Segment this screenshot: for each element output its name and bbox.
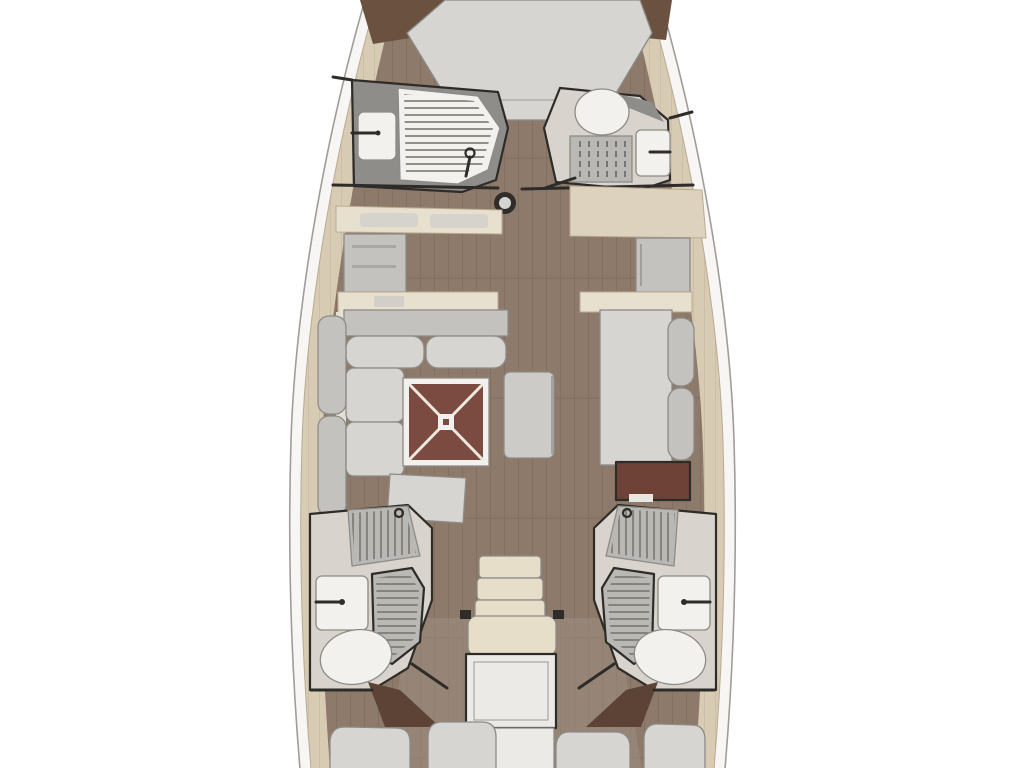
galley-drawer-handle-1 bbox=[352, 245, 396, 248]
aft-cabin-stbd-pillow-2 bbox=[644, 724, 705, 768]
stbd-counter bbox=[570, 186, 706, 238]
companionway-bracket-stbd bbox=[553, 610, 564, 619]
port-sofa-cushion-1 bbox=[346, 336, 424, 368]
engine-box bbox=[466, 654, 556, 728]
fwd-head-port-sink bbox=[358, 112, 396, 160]
aft-cabin-port-pillow-2 bbox=[428, 722, 496, 768]
galley-drawer-handle-2 bbox=[352, 265, 396, 268]
galley-sink-recess-2 bbox=[430, 214, 488, 228]
port-sofa-back-side-1 bbox=[318, 316, 346, 414]
port-sofa-back-top bbox=[344, 310, 508, 336]
salon-table-center-dot bbox=[443, 419, 449, 425]
aft-head-port-faucet-knob bbox=[339, 599, 345, 605]
galley-cabinet bbox=[344, 234, 406, 292]
companionway-landing bbox=[468, 616, 556, 656]
port-sofa-seat-1 bbox=[346, 368, 404, 422]
stbd-settee-back-1 bbox=[668, 318, 694, 386]
fwd-head-port-faucet-knob bbox=[376, 131, 381, 136]
aft-cabin-stbd-pillow-1 bbox=[556, 732, 630, 768]
fwd-head-stbd-toilet bbox=[575, 89, 629, 135]
salon-stool bbox=[504, 372, 554, 458]
port-sofa-back-side-2 bbox=[318, 416, 346, 516]
companionway-step-1 bbox=[479, 556, 541, 578]
stbd-settee bbox=[600, 310, 672, 465]
fwd-head-stbd-grate-slats bbox=[572, 138, 630, 180]
port-sofa-cushion-2 bbox=[426, 336, 506, 368]
companionway-step-2 bbox=[477, 578, 543, 600]
galley-sink-recess-1 bbox=[360, 213, 418, 227]
aft-head-stbd-grate-slats bbox=[610, 509, 675, 562]
stbd-settee-back-2 bbox=[668, 388, 694, 460]
companionway-bracket-port bbox=[460, 610, 471, 619]
aft-cabin-port-pillow-1 bbox=[330, 727, 410, 768]
aft-head-stbd-faucet-knob bbox=[681, 599, 687, 605]
mast-post-center bbox=[499, 197, 511, 209]
stbd-shelf bbox=[580, 292, 692, 312]
aft-head-port-grate-slats bbox=[351, 509, 416, 562]
yacht-floorplan bbox=[0, 0, 1024, 768]
floorplan-canvas bbox=[0, 0, 1024, 768]
galley-stove-recess bbox=[374, 296, 404, 307]
chart-locker-handle bbox=[629, 494, 653, 502]
stbd-locker bbox=[636, 238, 690, 292]
port-sofa-seat-2 bbox=[346, 422, 404, 476]
